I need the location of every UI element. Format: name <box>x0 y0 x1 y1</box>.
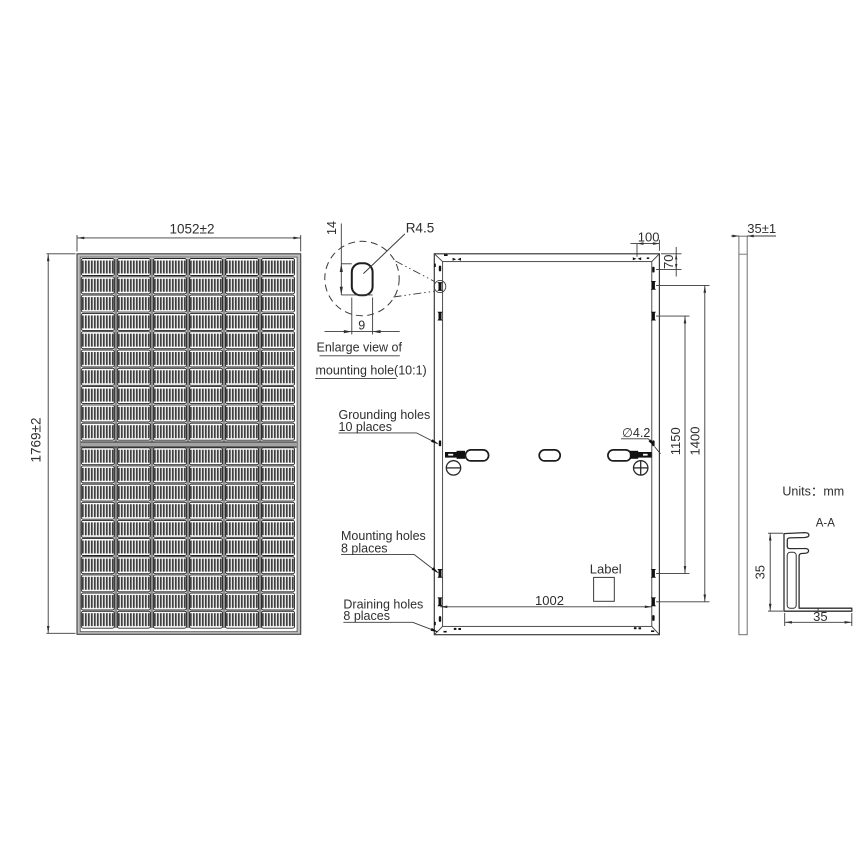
svg-text:mounting hole(10:1): mounting hole(10:1) <box>316 364 427 378</box>
svg-text:100: 100 <box>638 229 660 244</box>
svg-text:8 places: 8 places <box>341 541 388 555</box>
svg-text:10 places: 10 places <box>339 420 393 434</box>
svg-text:A-A: A-A <box>816 517 836 529</box>
svg-text:1150: 1150 <box>668 427 683 455</box>
svg-text:35: 35 <box>753 565 768 579</box>
svg-text:9: 9 <box>358 318 365 332</box>
svg-text:8 places: 8 places <box>343 609 390 623</box>
svg-text:1769±2: 1769±2 <box>29 418 44 463</box>
svg-text:1400: 1400 <box>688 427 703 456</box>
svg-text:Units：mm: Units：mm <box>782 484 844 498</box>
svg-text:70: 70 <box>661 255 676 269</box>
svg-text:R4.5: R4.5 <box>406 220 435 235</box>
svg-text:35: 35 <box>813 609 827 624</box>
svg-text:Enlarge view of: Enlarge view of <box>317 340 403 354</box>
svg-text:∅4.2: ∅4.2 <box>622 426 650 440</box>
svg-text:Label: Label <box>590 561 622 576</box>
svg-text:1002: 1002 <box>535 593 564 608</box>
svg-text:1052±2: 1052±2 <box>170 222 215 237</box>
svg-text:14: 14 <box>325 221 339 235</box>
svg-text:35±1: 35±1 <box>747 221 776 236</box>
